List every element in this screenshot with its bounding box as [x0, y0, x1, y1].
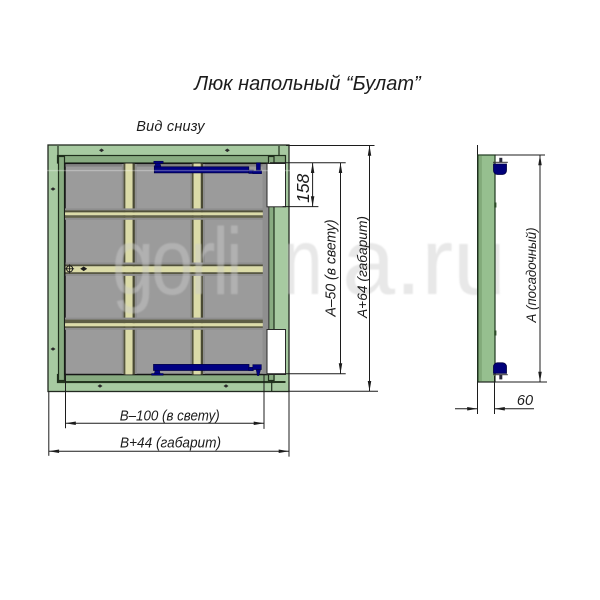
svg-text:Люк напольный “Булат”: Люк напольный “Булат” [192, 73, 422, 95]
svg-text:gorli: gorli [112, 209, 240, 315]
svg-text:n: n [283, 208, 323, 314]
svg-text:В+44 (габарит): В+44 (габарит) [120, 436, 221, 452]
svg-text:А–50 (в свету): А–50 (в свету) [324, 220, 340, 318]
svg-text:В–100 (в свету): В–100 (в свету) [120, 409, 220, 425]
svg-text:А (посадочный): А (посадочный) [524, 228, 539, 324]
svg-text:А+64 (габарит): А+64 (габарит) [354, 216, 370, 319]
svg-text:Вид снизу: Вид снизу [136, 119, 205, 135]
svg-text:158: 158 [293, 173, 313, 202]
svg-text:60: 60 [517, 393, 533, 409]
